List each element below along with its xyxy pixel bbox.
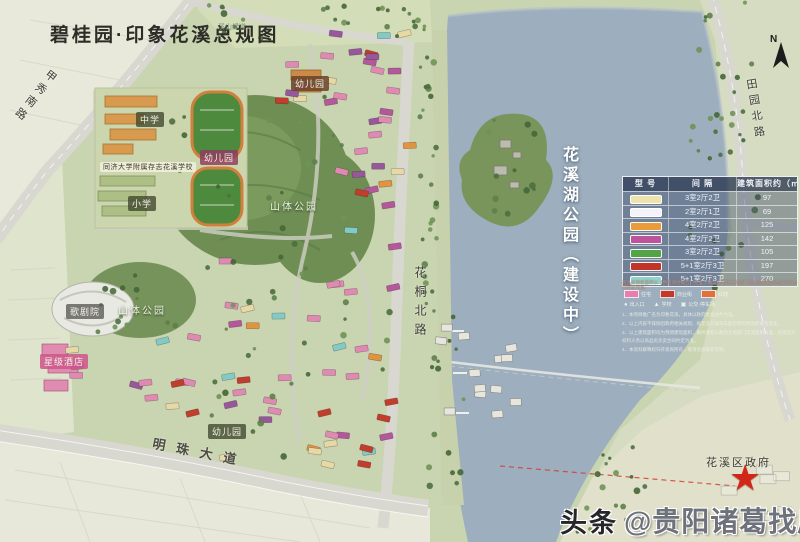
- label-mountain-park-main: 山体公园: [270, 198, 318, 213]
- entrance-icon: ●: [624, 302, 628, 308]
- toutiao-logo: 头条: [560, 501, 618, 540]
- legend-row: 3室2厅2卫105: [623, 245, 797, 259]
- label-greenway: 溪山绿道: [218, 22, 246, 32]
- legend-swatch: [630, 208, 662, 217]
- label-star-hotel: 星级酒店: [40, 354, 88, 369]
- legend-row: 4室2厅2卫125: [623, 218, 797, 232]
- legend-swatch: [630, 222, 662, 231]
- bus-parking-icon: ▣: [681, 301, 687, 308]
- legend-row: 2室2厅1卫69: [623, 205, 797, 219]
- watermark: 头条 @贵阳诸葛找房网: [560, 500, 800, 540]
- legend-swatch: [630, 195, 662, 204]
- legend-row: 3室2厅2卫97: [623, 191, 797, 205]
- government-star-marker: ★: [729, 460, 761, 496]
- north-compass: N: [770, 34, 777, 45]
- label-primary-school: 小学: [128, 196, 156, 211]
- north-label: N: [770, 34, 777, 45]
- chip-commercial: [660, 290, 675, 298]
- legend-header-area: 建筑面积约（㎡）: [737, 177, 797, 191]
- legend-row: 4室2厅2卫142: [623, 232, 797, 246]
- label-lake-park: 花溪湖公园（建设中）: [556, 146, 580, 346]
- legend-header-row: 型 号 间 隔 建筑面积约（㎡）: [623, 177, 797, 191]
- unit-legend-table: 型 号 间 隔 建筑面积约（㎡） 3室2厅2卫97 2室2厅1卫69 4室2厅2…: [622, 176, 798, 287]
- chip-residential: [624, 290, 639, 298]
- legend-header-model: 型 号: [623, 177, 669, 191]
- label-kindergarten-bottom: 幼儿园: [208, 424, 246, 439]
- chip-redline: [701, 290, 716, 298]
- label-school-full-name: 同济大学附属存志花溪学校: [100, 162, 196, 172]
- mini-legend-icons: ●出入口 ▲学校 ▣公交·停车场: [624, 301, 796, 308]
- mini-legend-chips: 住宅 商业街 红线: [624, 290, 796, 298]
- label-middle-school: 中学: [136, 112, 164, 127]
- legend-header-layout: 间 隔: [669, 177, 737, 191]
- label-kindergarten-top: 幼儿园: [291, 76, 329, 91]
- label-kindergarten-mid: 幼儿园: [200, 150, 238, 165]
- label-opera-house: 歌剧院: [66, 304, 104, 319]
- road-label-huatong: 花桐北路: [412, 266, 429, 342]
- legend-swatch: [630, 249, 662, 258]
- master-plan-poster: 碧桂园·印象花溪总规图 溪山绿道 甲秀南路 田园北路 花桐北路 明珠大道 中学 …: [0, 0, 800, 542]
- school-icon: ▲: [654, 302, 660, 308]
- legend-row: 5+1室2厅3卫197: [623, 259, 797, 273]
- legend-swatch: [630, 235, 662, 244]
- label-mountain-park-west: 山体公园: [118, 302, 166, 317]
- legend-disclaimers: 1、本项目推广名为印象花溪，具体以政府批准文件为准。 2、以上内容不排除因政府相…: [622, 311, 798, 355]
- legend-swatch: [630, 262, 662, 271]
- watermark-handle: @贵阳诸葛找房网: [624, 500, 800, 540]
